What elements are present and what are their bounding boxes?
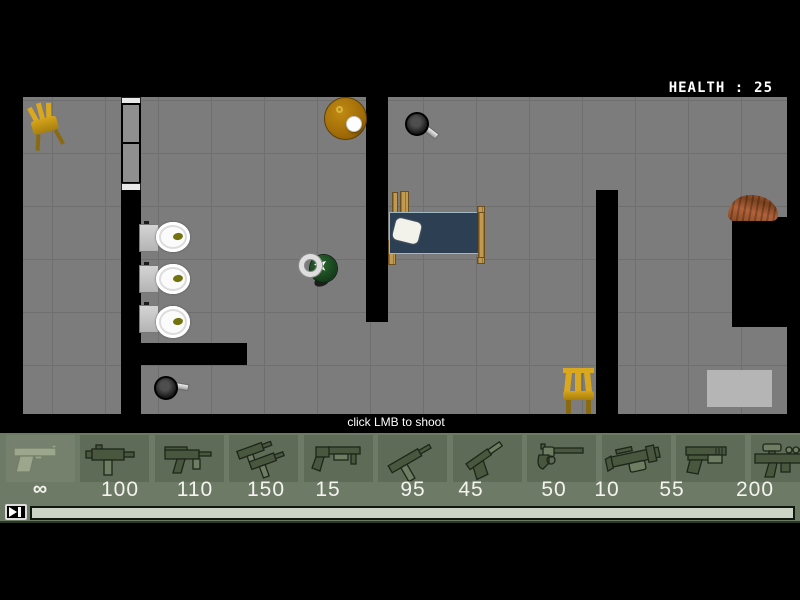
desert-eagle-icon — [8, 437, 72, 481]
bed — [387, 190, 488, 268]
progress-track[interactable] — [30, 506, 795, 520]
wall-middle-vertical — [596, 190, 618, 414]
table-knob — [336, 106, 343, 113]
door-panel — [121, 142, 141, 184]
weapon-slot-suppressed-pistol[interactable] — [453, 435, 522, 482]
health-display: HEALTH :25 — [669, 80, 773, 96]
wall-right-alcove — [732, 217, 792, 327]
revolver-icon — [529, 437, 593, 481]
rug — [707, 370, 772, 407]
player-target-ring — [299, 254, 322, 277]
suppressed-pistol-icon — [455, 437, 519, 481]
door-panel — [121, 103, 141, 144]
table-lamp — [347, 117, 361, 131]
bed-footboard — [478, 211, 485, 259]
toilet-bowl — [156, 222, 190, 252]
weapon-slot-mp5k[interactable] — [155, 435, 224, 482]
health-value: 25 — [754, 80, 773, 96]
weapon-slot-revolver[interactable] — [527, 435, 596, 482]
health-label: HEALTH : — [669, 80, 744, 96]
bed-footboard-knob — [477, 206, 485, 213]
wall-toilet-room — [141, 343, 247, 365]
scoped-rifle-icon — [753, 437, 800, 481]
chair-leg — [54, 129, 65, 145]
tec9-icon — [380, 437, 444, 481]
ammo-count: 100 — [80, 478, 160, 502]
bed-footboard-knob — [477, 257, 485, 264]
weapon-slot-dual-uzis[interactable] — [229, 435, 298, 482]
toilet-water — [172, 232, 183, 241]
pan-disc — [154, 376, 178, 400]
skip-button[interactable] — [5, 504, 27, 520]
chair — [562, 368, 595, 414]
wall-left-vertical — [121, 190, 141, 414]
tactical-pistol-icon — [678, 437, 742, 481]
ammo-count: ∞ — [0, 478, 80, 501]
mac10-icon — [82, 437, 146, 481]
wall-top-center — [366, 97, 388, 322]
chair-back-slat — [575, 372, 581, 392]
weapon-slot-tactical-pistol[interactable] — [676, 435, 745, 482]
toilet-water — [172, 274, 183, 283]
grenade-launcher-icon — [604, 437, 668, 481]
ammo-count: 45 — [431, 478, 511, 502]
ammo-count: 110 — [155, 478, 235, 502]
weapon-slot-desert-eagle[interactable] — [6, 435, 75, 482]
ammo-count: 15 — [288, 478, 368, 502]
chair-back-slat — [564, 372, 572, 393]
ammo-count: 200 — [715, 478, 795, 502]
hint-text: click LMB to shoot — [300, 415, 492, 429]
game-screen: HEALTH :25 — [0, 0, 800, 600]
pan-disc — [405, 112, 429, 136]
weapon-bar: ∞ 100 110 150 15 95 45 50 10 55 200 — [0, 433, 800, 523]
weapon-slot-scoped-rifle[interactable] — [751, 435, 800, 482]
weapon-slot-shotgun[interactable] — [304, 435, 373, 482]
chair-back-slat — [584, 372, 592, 393]
weapon-slot-tec9[interactable] — [378, 435, 447, 482]
chair-leg — [566, 400, 571, 414]
shotgun-icon — [306, 437, 370, 481]
chair-seat — [563, 391, 594, 400]
ammo-count: 55 — [632, 478, 712, 502]
dual-uzis-icon — [231, 437, 295, 481]
weapon-slot-mac10[interactable] — [80, 435, 149, 482]
chair-leg — [36, 135, 41, 151]
mp5k-icon — [157, 437, 221, 481]
round-table — [324, 97, 367, 140]
toilet-water — [172, 317, 183, 326]
skip-icon — [8, 507, 24, 517]
toilet-bowl — [156, 306, 190, 338]
chair-leg — [586, 400, 591, 414]
toilet-bowl — [156, 264, 190, 294]
weapon-slot-grenade-launcher[interactable] — [602, 435, 671, 482]
